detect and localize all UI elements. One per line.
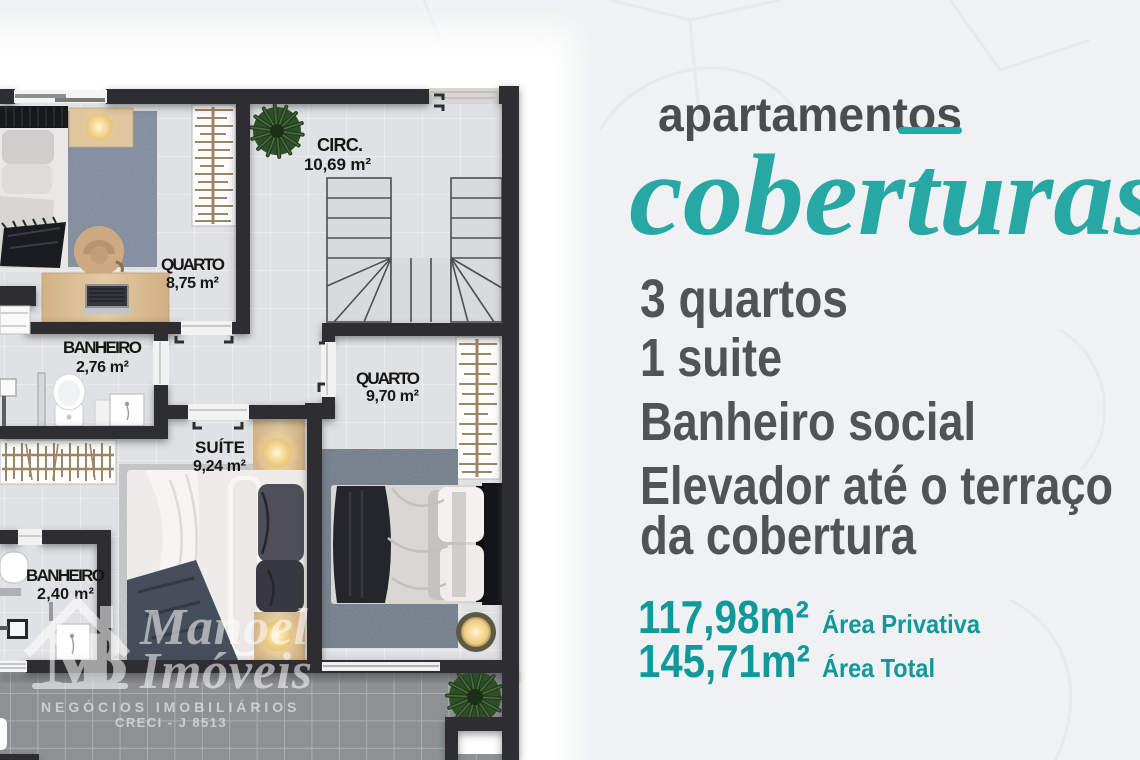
- svg-text:Área Total: Área Total: [822, 653, 935, 683]
- svg-text:NEGÓCIOS IMOBILIÁRIOS: NEGÓCIOS IMOBILIÁRIOS: [41, 698, 301, 715]
- svg-text:CRECI - J 8513: CRECI - J 8513: [115, 715, 229, 730]
- svg-text:8,75 m²: 8,75 m²: [166, 275, 219, 292]
- svg-text:9,24 m²: 9,24 m²: [193, 458, 246, 475]
- svg-text:SUÍTE: SUÍTE: [195, 438, 245, 457]
- svg-text:10,69 m²: 10,69 m²: [304, 155, 371, 174]
- svg-text:BANHEIRO: BANHEIRO: [26, 566, 105, 585]
- svg-text:145,71m²: 145,71m²: [638, 635, 810, 687]
- svg-text:QUARTO: QUARTO: [356, 369, 420, 388]
- svg-text:da cobertura: da cobertura: [640, 506, 917, 566]
- svg-text:2,40 m²: 2,40 m²: [37, 586, 94, 603]
- svg-text:1 suite: 1 suite: [640, 328, 782, 388]
- svg-text:Banheiro social: Banheiro social: [640, 392, 976, 452]
- svg-text:9,70 m²: 9,70 m²: [366, 388, 419, 405]
- svg-text:CIRC.: CIRC.: [317, 135, 363, 155]
- svg-text:3 quartos: 3 quartos: [640, 269, 848, 329]
- svg-text:Área Privativa: Área Privativa: [822, 609, 980, 639]
- svg-text:BANHEIRO: BANHEIRO: [63, 338, 142, 357]
- svg-text:2,76 m²: 2,76 m²: [76, 359, 129, 376]
- svg-text:Imóveis: Imóveis: [139, 643, 312, 700]
- svg-text:coberturas: coberturas: [629, 132, 1140, 260]
- svg-text:QUARTO: QUARTO: [161, 255, 225, 274]
